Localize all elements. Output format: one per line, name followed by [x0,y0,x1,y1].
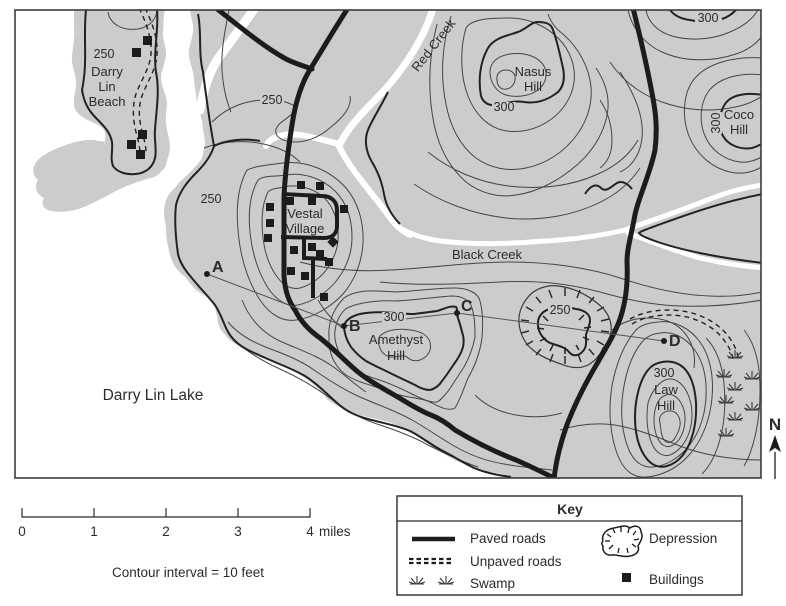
svg-text:Nasus: Nasus [515,64,552,79]
svg-text:0: 0 [18,524,26,539]
svg-text:Hill: Hill [657,398,675,413]
svg-text:Lin: Lin [98,79,115,94]
svg-text:D: D [669,333,681,350]
svg-text:Buildings: Buildings [649,572,704,587]
svg-text:300: 300 [494,100,515,114]
svg-text:Contour interval = 10 feet: Contour interval = 10 feet [112,565,264,580]
svg-text:2: 2 [162,524,170,539]
svg-text:Hill: Hill [524,79,542,94]
svg-text:Black Creek: Black Creek [452,247,523,262]
svg-text:250: 250 [262,93,283,107]
svg-text:Hill: Hill [387,348,405,363]
svg-text:Law: Law [654,382,678,397]
svg-text:3: 3 [234,524,242,539]
svg-text:Swamp: Swamp [470,576,515,591]
svg-text:Beach: Beach [89,94,126,109]
svg-text:Depression: Depression [649,531,717,546]
svg-text:300: 300 [709,113,723,134]
svg-text:Paved roads: Paved roads [470,531,546,546]
svg-text:miles: miles [319,524,351,539]
svg-text:300: 300 [654,366,675,380]
svg-text:250: 250 [201,192,222,206]
svg-text:N: N [769,415,781,434]
svg-text:Vestal: Vestal [287,206,323,221]
svg-text:Village: Village [286,221,325,236]
svg-text:300: 300 [384,310,405,324]
svg-text:4: 4 [306,524,314,539]
svg-text:250: 250 [550,303,571,317]
svg-text:Darry: Darry [91,64,123,79]
svg-text:Darry Lin Lake: Darry Lin Lake [103,387,204,404]
svg-text:Amethyst: Amethyst [369,332,424,347]
svg-text:B: B [349,318,361,335]
svg-text:Hill: Hill [730,122,748,137]
svg-text:1: 1 [90,524,98,539]
svg-text:A: A [212,259,224,276]
svg-text:250: 250 [94,47,115,61]
svg-text:300: 300 [698,11,719,25]
svg-text:C: C [461,298,473,315]
svg-text:Coco: Coco [724,107,754,122]
svg-text:Unpaved roads: Unpaved roads [470,554,562,569]
svg-text:Key: Key [557,501,583,517]
